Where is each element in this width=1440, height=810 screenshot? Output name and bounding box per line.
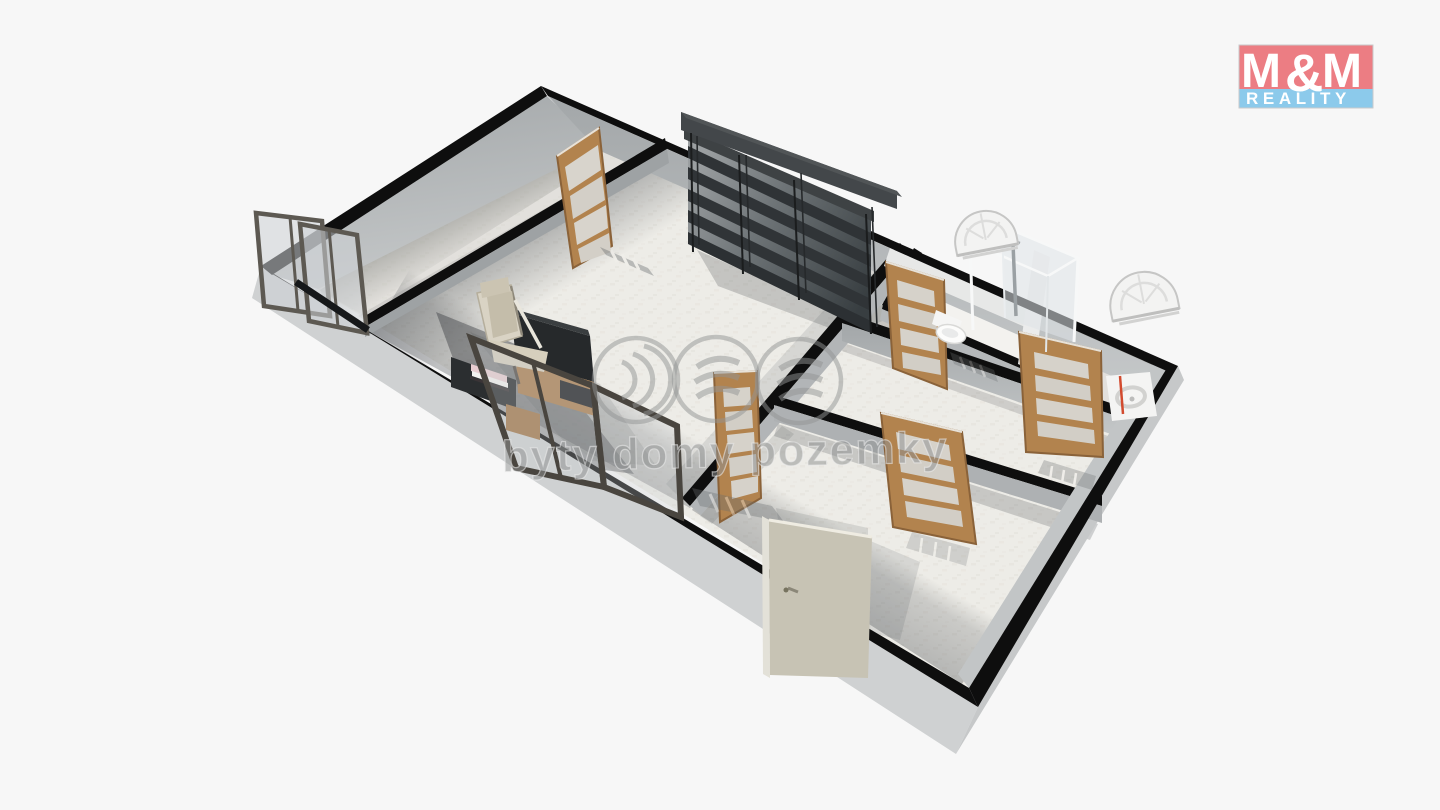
svg-text:REALITY: REALITY [1246,89,1351,108]
svg-text:byty domy pozemky: byty domy pozemky [501,423,948,481]
